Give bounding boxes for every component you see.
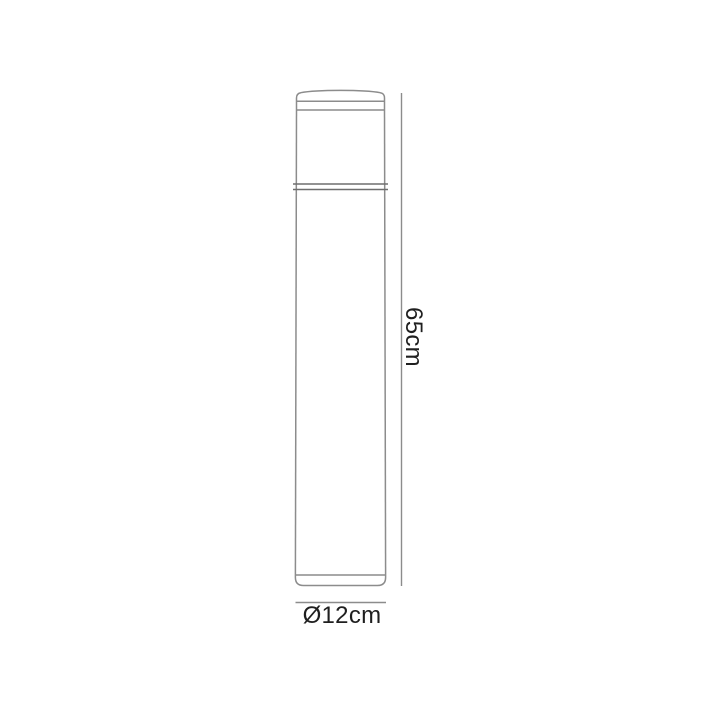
diameter-dimension-label: Ø12cm — [303, 604, 382, 628]
body-left-edge — [295, 110, 296, 575]
height-dimension-label: 65cm — [401, 307, 425, 367]
body-right-edge — [385, 110, 386, 575]
product-dimension-diagram: 65cm Ø12cm — [0, 0, 720, 720]
base-rounded-outline — [295, 575, 385, 586]
cap-dome-outline — [297, 90, 385, 110]
